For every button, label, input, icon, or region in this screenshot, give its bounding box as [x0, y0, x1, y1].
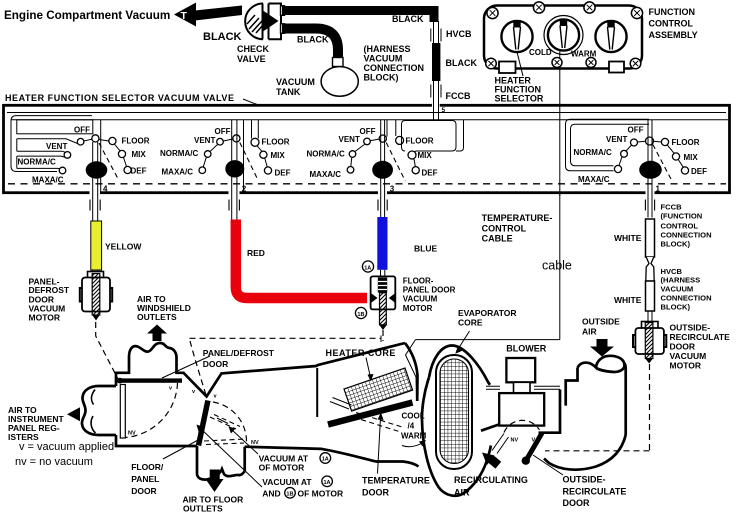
svg-text:PANEL DOOR: PANEL DOOR: [403, 286, 456, 295]
svg-text:/4: /4: [408, 422, 415, 431]
svg-text:DEF: DEF: [275, 168, 291, 177]
svg-text:WHITE: WHITE: [614, 233, 642, 243]
svg-text:WHITE: WHITE: [614, 295, 642, 305]
svg-text:BLOCK): BLOCK): [661, 240, 691, 249]
svg-text:(HARNESS: (HARNESS: [364, 44, 411, 54]
svg-text:MAXA/C: MAXA/C: [578, 175, 610, 184]
svg-text:OFF: OFF: [360, 127, 376, 136]
svg-text:CONNECTION: CONNECTION: [364, 63, 425, 73]
svg-text:NORMA/C: NORMA/C: [574, 148, 612, 157]
svg-text:CORE: CORE: [458, 318, 483, 328]
svg-text:VACUUM AT: VACUUM AT: [262, 477, 312, 487]
svg-text:BLOCK): BLOCK): [661, 302, 691, 311]
svg-text:MAXA/C: MAXA/C: [310, 170, 342, 179]
svg-text:cable: cable: [542, 259, 572, 273]
svg-text:MOTOR: MOTOR: [670, 361, 701, 371]
svg-text:1A: 1A: [322, 457, 329, 463]
svg-text:ASSEMBLY: ASSEMBLY: [649, 30, 698, 40]
svg-text:BLACK: BLACK: [297, 35, 329, 45]
svg-text:BLOWER: BLOWER: [506, 344, 546, 354]
svg-text:CONTROL: CONTROL: [482, 224, 527, 234]
svg-text:FLOOR: FLOOR: [122, 137, 150, 146]
svg-text:v = vacuum applied: v = vacuum applied: [19, 441, 114, 453]
svg-text:MOTOR: MOTOR: [29, 313, 60, 323]
svg-text:OF MOTOR: OF MOTOR: [298, 489, 344, 499]
svg-text:FLOOR: FLOOR: [672, 138, 700, 147]
svg-text:HVCB: HVCB: [446, 29, 472, 39]
svg-text:DOOR: DOOR: [563, 498, 591, 508]
svg-text:RECIRCULATE: RECIRCULATE: [563, 487, 627, 497]
svg-text:2: 2: [242, 185, 247, 194]
svg-text:1A: 1A: [364, 265, 371, 271]
svg-text:COLD: COLD: [529, 48, 552, 57]
svg-text:MAXA/C: MAXA/C: [32, 175, 64, 184]
svg-text:(HARNESS: (HARNESS: [661, 276, 701, 285]
svg-text:WARM: WARM: [571, 50, 597, 59]
svg-text:MIX: MIX: [271, 151, 286, 160]
svg-text:HEATER FUNCTION SELECTOR VA: HEATER FUNCTION SELECTOR VACUUM VALVE: [5, 93, 235, 103]
svg-text:FLOOR/: FLOOR/: [131, 462, 164, 472]
svg-text:AND: AND: [262, 489, 280, 499]
svg-text:VACUUM: VACUUM: [364, 54, 403, 64]
svg-text:MOTOR: MOTOR: [403, 304, 433, 313]
svg-text:FCCB: FCCB: [661, 203, 683, 212]
svg-text:VACUUM: VACUUM: [276, 77, 315, 87]
svg-text:OFF: OFF: [74, 126, 90, 135]
svg-text:VENT: VENT: [46, 142, 67, 151]
svg-text:VACUUM: VACUUM: [403, 295, 438, 304]
svg-text:BLACK: BLACK: [392, 14, 424, 24]
svg-text:MIX: MIX: [684, 153, 699, 162]
svg-text:VENT: VENT: [606, 135, 627, 144]
svg-text:DOOR: DOOR: [362, 488, 390, 498]
svg-text:DEF: DEF: [131, 167, 147, 176]
svg-text:CONNECTION: CONNECTION: [661, 231, 712, 240]
svg-text:nv = no vacuum: nv = no vacuum: [15, 456, 93, 468]
svg-text:5: 5: [442, 107, 446, 114]
svg-text:DOOR: DOOR: [203, 359, 229, 369]
svg-text:COOL: COOL: [402, 412, 425, 421]
svg-text:BLACK: BLACK: [203, 31, 242, 43]
svg-text:OUTLETS: OUTLETS: [183, 504, 223, 514]
svg-text:FLOOR-: FLOOR-: [403, 277, 434, 286]
svg-text:NV: NV: [128, 431, 136, 437]
svg-text:FLOOR: FLOOR: [406, 136, 434, 145]
svg-text:EVAPORATOR: EVAPORATOR: [458, 308, 517, 318]
svg-text:CHECK: CHECK: [237, 44, 270, 54]
svg-text:OUTSIDE-: OUTSIDE-: [563, 475, 606, 485]
svg-text:NORMA/C: NORMA/C: [307, 150, 345, 159]
svg-text:HEATER CORE: HEATER CORE: [326, 348, 396, 358]
svg-text:NORMA/C: NORMA/C: [160, 149, 198, 158]
svg-text:AIR: AIR: [582, 327, 597, 337]
svg-text:DEFROST: DEFROST: [29, 285, 70, 295]
svg-text:1: 1: [656, 185, 661, 194]
svg-text:YELLOW: YELLOW: [105, 242, 142, 252]
svg-text:RECIRCULATE: RECIRCULATE: [670, 332, 731, 342]
svg-text:TEMPERATURE-: TEMPERATURE-: [482, 213, 553, 223]
svg-text:FUNCTION: FUNCTION: [649, 7, 696, 17]
svg-text:MIX: MIX: [132, 150, 147, 159]
svg-text:PANEL: PANEL: [131, 474, 159, 484]
svg-text:3: 3: [390, 185, 395, 194]
svg-text:DEF: DEF: [691, 167, 707, 176]
svg-text:1B: 1B: [286, 492, 293, 498]
svg-text:VENT: VENT: [194, 136, 215, 145]
svg-text:OUTSIDE: OUTSIDE: [582, 317, 620, 327]
svg-text:(FUNCTION: (FUNCTION: [661, 212, 703, 221]
svg-text:DOOR: DOOR: [670, 342, 696, 352]
svg-text:Engine Compartment Vacuum: Engine Compartment Vacuum: [4, 9, 170, 22]
svg-text:DEF: DEF: [422, 169, 438, 178]
svg-text:VALVE: VALVE: [237, 54, 266, 64]
svg-text:SELECTOR: SELECTOR: [495, 94, 544, 104]
svg-text:OF MOTOR: OF MOTOR: [259, 463, 305, 473]
svg-text:BLUE: BLUE: [414, 244, 437, 254]
svg-text:PANEL/DEFROST: PANEL/DEFROST: [203, 348, 275, 358]
svg-text:FLOOR: FLOOR: [262, 137, 290, 146]
svg-text:CONTROL: CONTROL: [661, 222, 699, 231]
svg-text:4: 4: [103, 185, 108, 194]
svg-text:NORMA/C: NORMA/C: [18, 158, 56, 167]
svg-text:CABLE: CABLE: [482, 234, 513, 244]
svg-text:BLOCK): BLOCK): [364, 73, 399, 83]
svg-text:OUTLETS: OUTLETS: [137, 312, 177, 322]
svg-text:TANK: TANK: [276, 87, 301, 97]
svg-text:RED: RED: [247, 248, 265, 258]
svg-text:MIX: MIX: [418, 151, 433, 160]
svg-text:V: V: [532, 438, 536, 444]
svg-text:T: T: [181, 10, 188, 22]
svg-text:FCCB: FCCB: [446, 91, 471, 101]
svg-text:MAXA/C: MAXA/C: [162, 168, 194, 177]
svg-text:1A: 1A: [324, 480, 331, 486]
svg-text:CONNECTION: CONNECTION: [661, 294, 712, 303]
svg-text:OUTSIDE-: OUTSIDE-: [670, 323, 711, 333]
svg-text:VENT: VENT: [339, 135, 360, 144]
svg-text:VACUUM: VACUUM: [670, 351, 707, 361]
svg-text:OFF: OFF: [215, 127, 231, 136]
svg-text:RECIRCULATING: RECIRCULATING: [454, 475, 528, 485]
svg-text:BLACK: BLACK: [446, 58, 478, 68]
svg-text:AIR: AIR: [454, 488, 470, 498]
svg-text:1B: 1B: [357, 312, 364, 318]
svg-text:WARM: WARM: [401, 432, 427, 441]
svg-text:OFF: OFF: [628, 125, 644, 134]
svg-text:CONTROL: CONTROL: [649, 19, 694, 29]
svg-text:NV: NV: [251, 440, 259, 446]
svg-text:TEMPERATURE: TEMPERATURE: [362, 476, 430, 486]
svg-text:NV: NV: [511, 438, 519, 444]
svg-text:DOOR: DOOR: [131, 486, 157, 496]
svg-text:VACUUM: VACUUM: [661, 285, 694, 294]
